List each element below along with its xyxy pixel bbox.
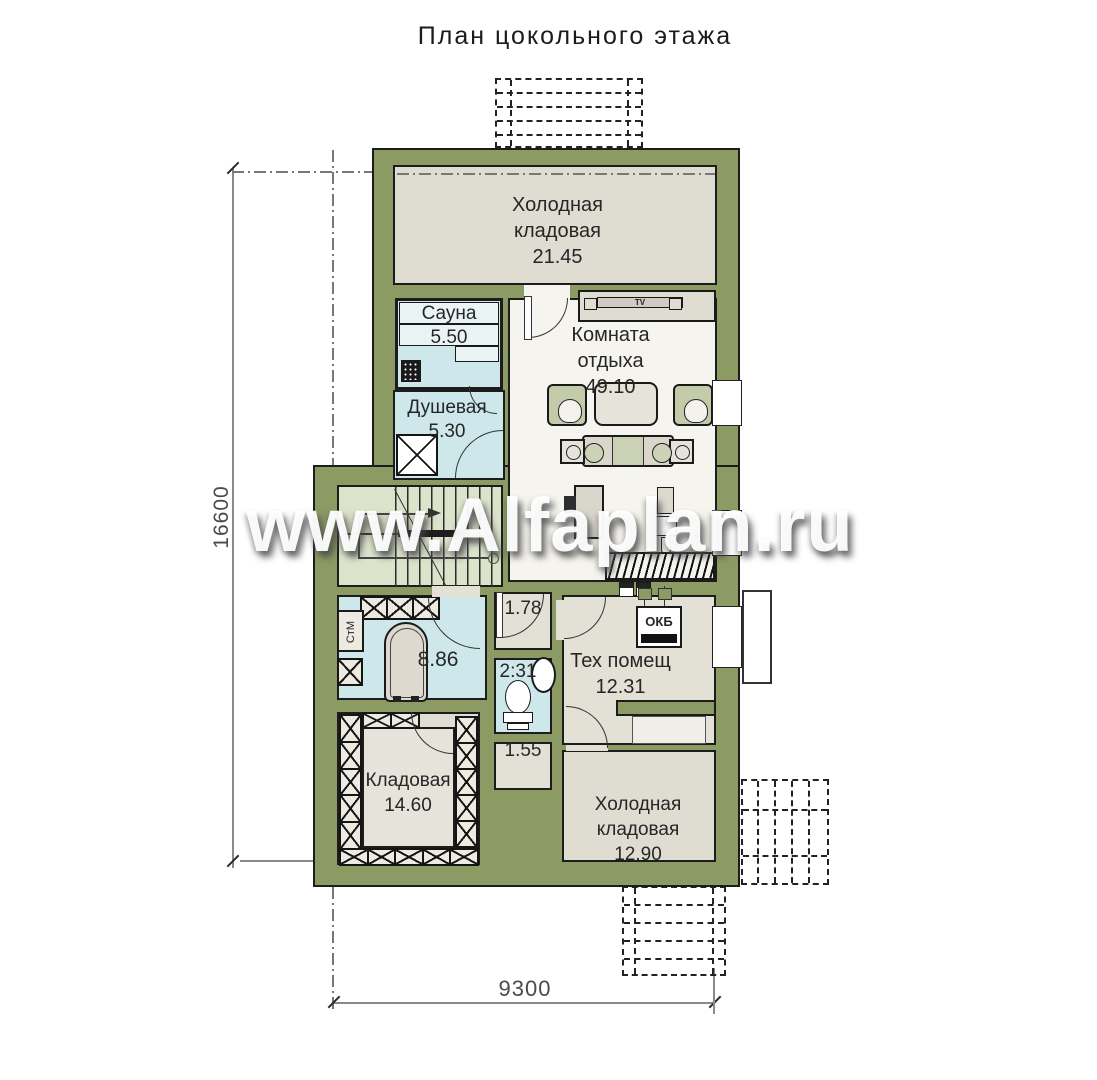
shelf-box (360, 596, 388, 620)
sofa-pillow (652, 443, 672, 463)
washing-machine: СтМ (337, 610, 364, 652)
shelf-box (449, 848, 479, 866)
interior-wall-jog (616, 700, 716, 716)
shelf-box (339, 714, 362, 743)
boiler: ОКБ (636, 606, 682, 648)
washing-machine-label: СтМ (345, 612, 357, 652)
shelf-box (362, 712, 392, 729)
side-table-ring (566, 445, 581, 460)
side-table (560, 439, 585, 464)
label-sauna: Сауна 5.50 (398, 302, 500, 350)
speaker (584, 298, 597, 310)
panel-strip (620, 583, 633, 588)
bottom-dimension-line (333, 1002, 715, 1004)
shelf-box (455, 742, 478, 770)
sauna-heater (401, 360, 421, 382)
label-cold-storage-top: Холодная кладовая 21.45 (440, 192, 675, 270)
axis-line-horizontal (232, 171, 372, 173)
axis-line-vertical (332, 887, 334, 1012)
shelf-box (422, 848, 452, 866)
sofa-cushion (612, 437, 644, 465)
wall-sleeve (658, 588, 672, 600)
boiler-label: ОКБ (638, 614, 680, 629)
wall-sleeve (638, 588, 652, 600)
bathtub-foot (393, 696, 401, 702)
window (712, 380, 742, 426)
toilet-tank (503, 712, 533, 723)
dimension-width-label: 9300 (450, 976, 600, 1002)
toilet-base (507, 723, 529, 730)
label-laundry: 8.86 (402, 648, 474, 672)
shelf-box (337, 658, 363, 686)
shelf-box (339, 741, 362, 770)
speaker (669, 298, 682, 310)
label-wc: 2:31 (494, 661, 542, 683)
shelf-box (339, 821, 362, 850)
armchair-cushion (684, 399, 708, 423)
exterior-stair-bottom (622, 886, 726, 976)
shelf-band (339, 848, 479, 866)
exterior-stair-top (495, 78, 643, 148)
door-opening (432, 586, 480, 597)
label-storage: Кладовая 14.60 (356, 768, 460, 818)
label-lounge: Комната отдыха 49.10 (538, 322, 683, 400)
label-shower: Душевая 5.30 (393, 396, 501, 444)
label-corridor: 1.55 (494, 740, 552, 762)
electric-panel (619, 582, 634, 597)
toilet-bowl (505, 680, 531, 714)
label-hall: 1.78 (497, 598, 549, 620)
axis-line-vertical (332, 150, 334, 465)
shelf-box (339, 848, 369, 866)
exterior-stair-right (741, 779, 829, 885)
watermark: www.Alfaplan.ru (110, 482, 990, 569)
armchair-cushion (558, 399, 582, 423)
shelf-box (394, 848, 424, 866)
dimension-extension (240, 860, 313, 862)
boiler-base (641, 634, 677, 643)
door-leaf (524, 296, 532, 340)
axis-line-horizontal (397, 173, 715, 175)
shelf-box (455, 716, 478, 744)
bathtub-foot (411, 696, 419, 702)
shelf-box (386, 596, 414, 620)
side-table-ring (675, 445, 690, 460)
page-title: План цокольного этажа (395, 22, 755, 51)
window (712, 606, 742, 668)
shelf-box (455, 820, 478, 848)
shelf-box (367, 848, 397, 866)
label-tech-room: Тех помещ 12.31 (558, 648, 683, 700)
window-light-well (742, 590, 772, 684)
floor-plan-canvas: План цокольного этажа 16600 9300 (0, 0, 1097, 1080)
sofa-pillow (584, 443, 604, 463)
side-table (669, 439, 694, 464)
label-cold-storage-bottom: Холодная кладовая 12.90 (576, 792, 700, 867)
wall-niche (632, 716, 706, 744)
